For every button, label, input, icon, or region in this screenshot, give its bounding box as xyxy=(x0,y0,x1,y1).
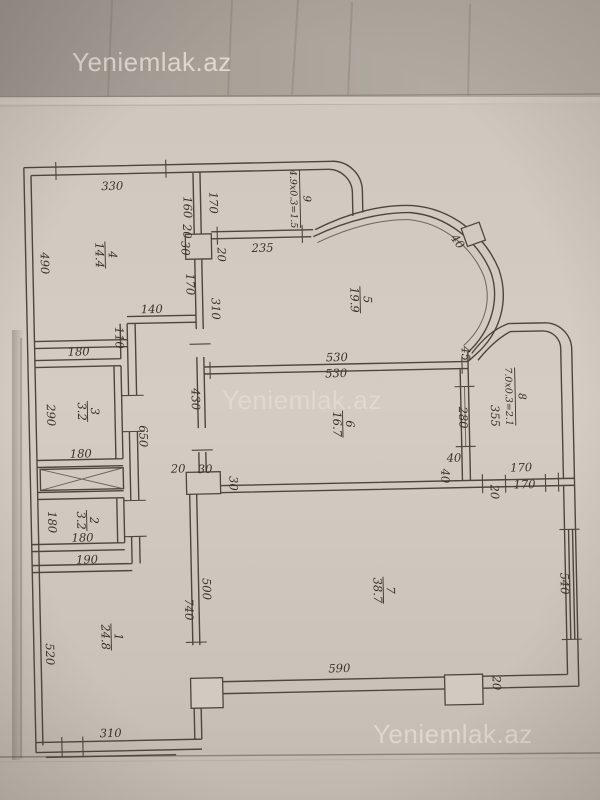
vignette xyxy=(0,0,600,800)
floor-plan-photo: 3304901601702030202351703101401101802901… xyxy=(0,0,600,800)
floor-plan-svg: 3304901601702030202351703101401101802901… xyxy=(0,0,600,800)
